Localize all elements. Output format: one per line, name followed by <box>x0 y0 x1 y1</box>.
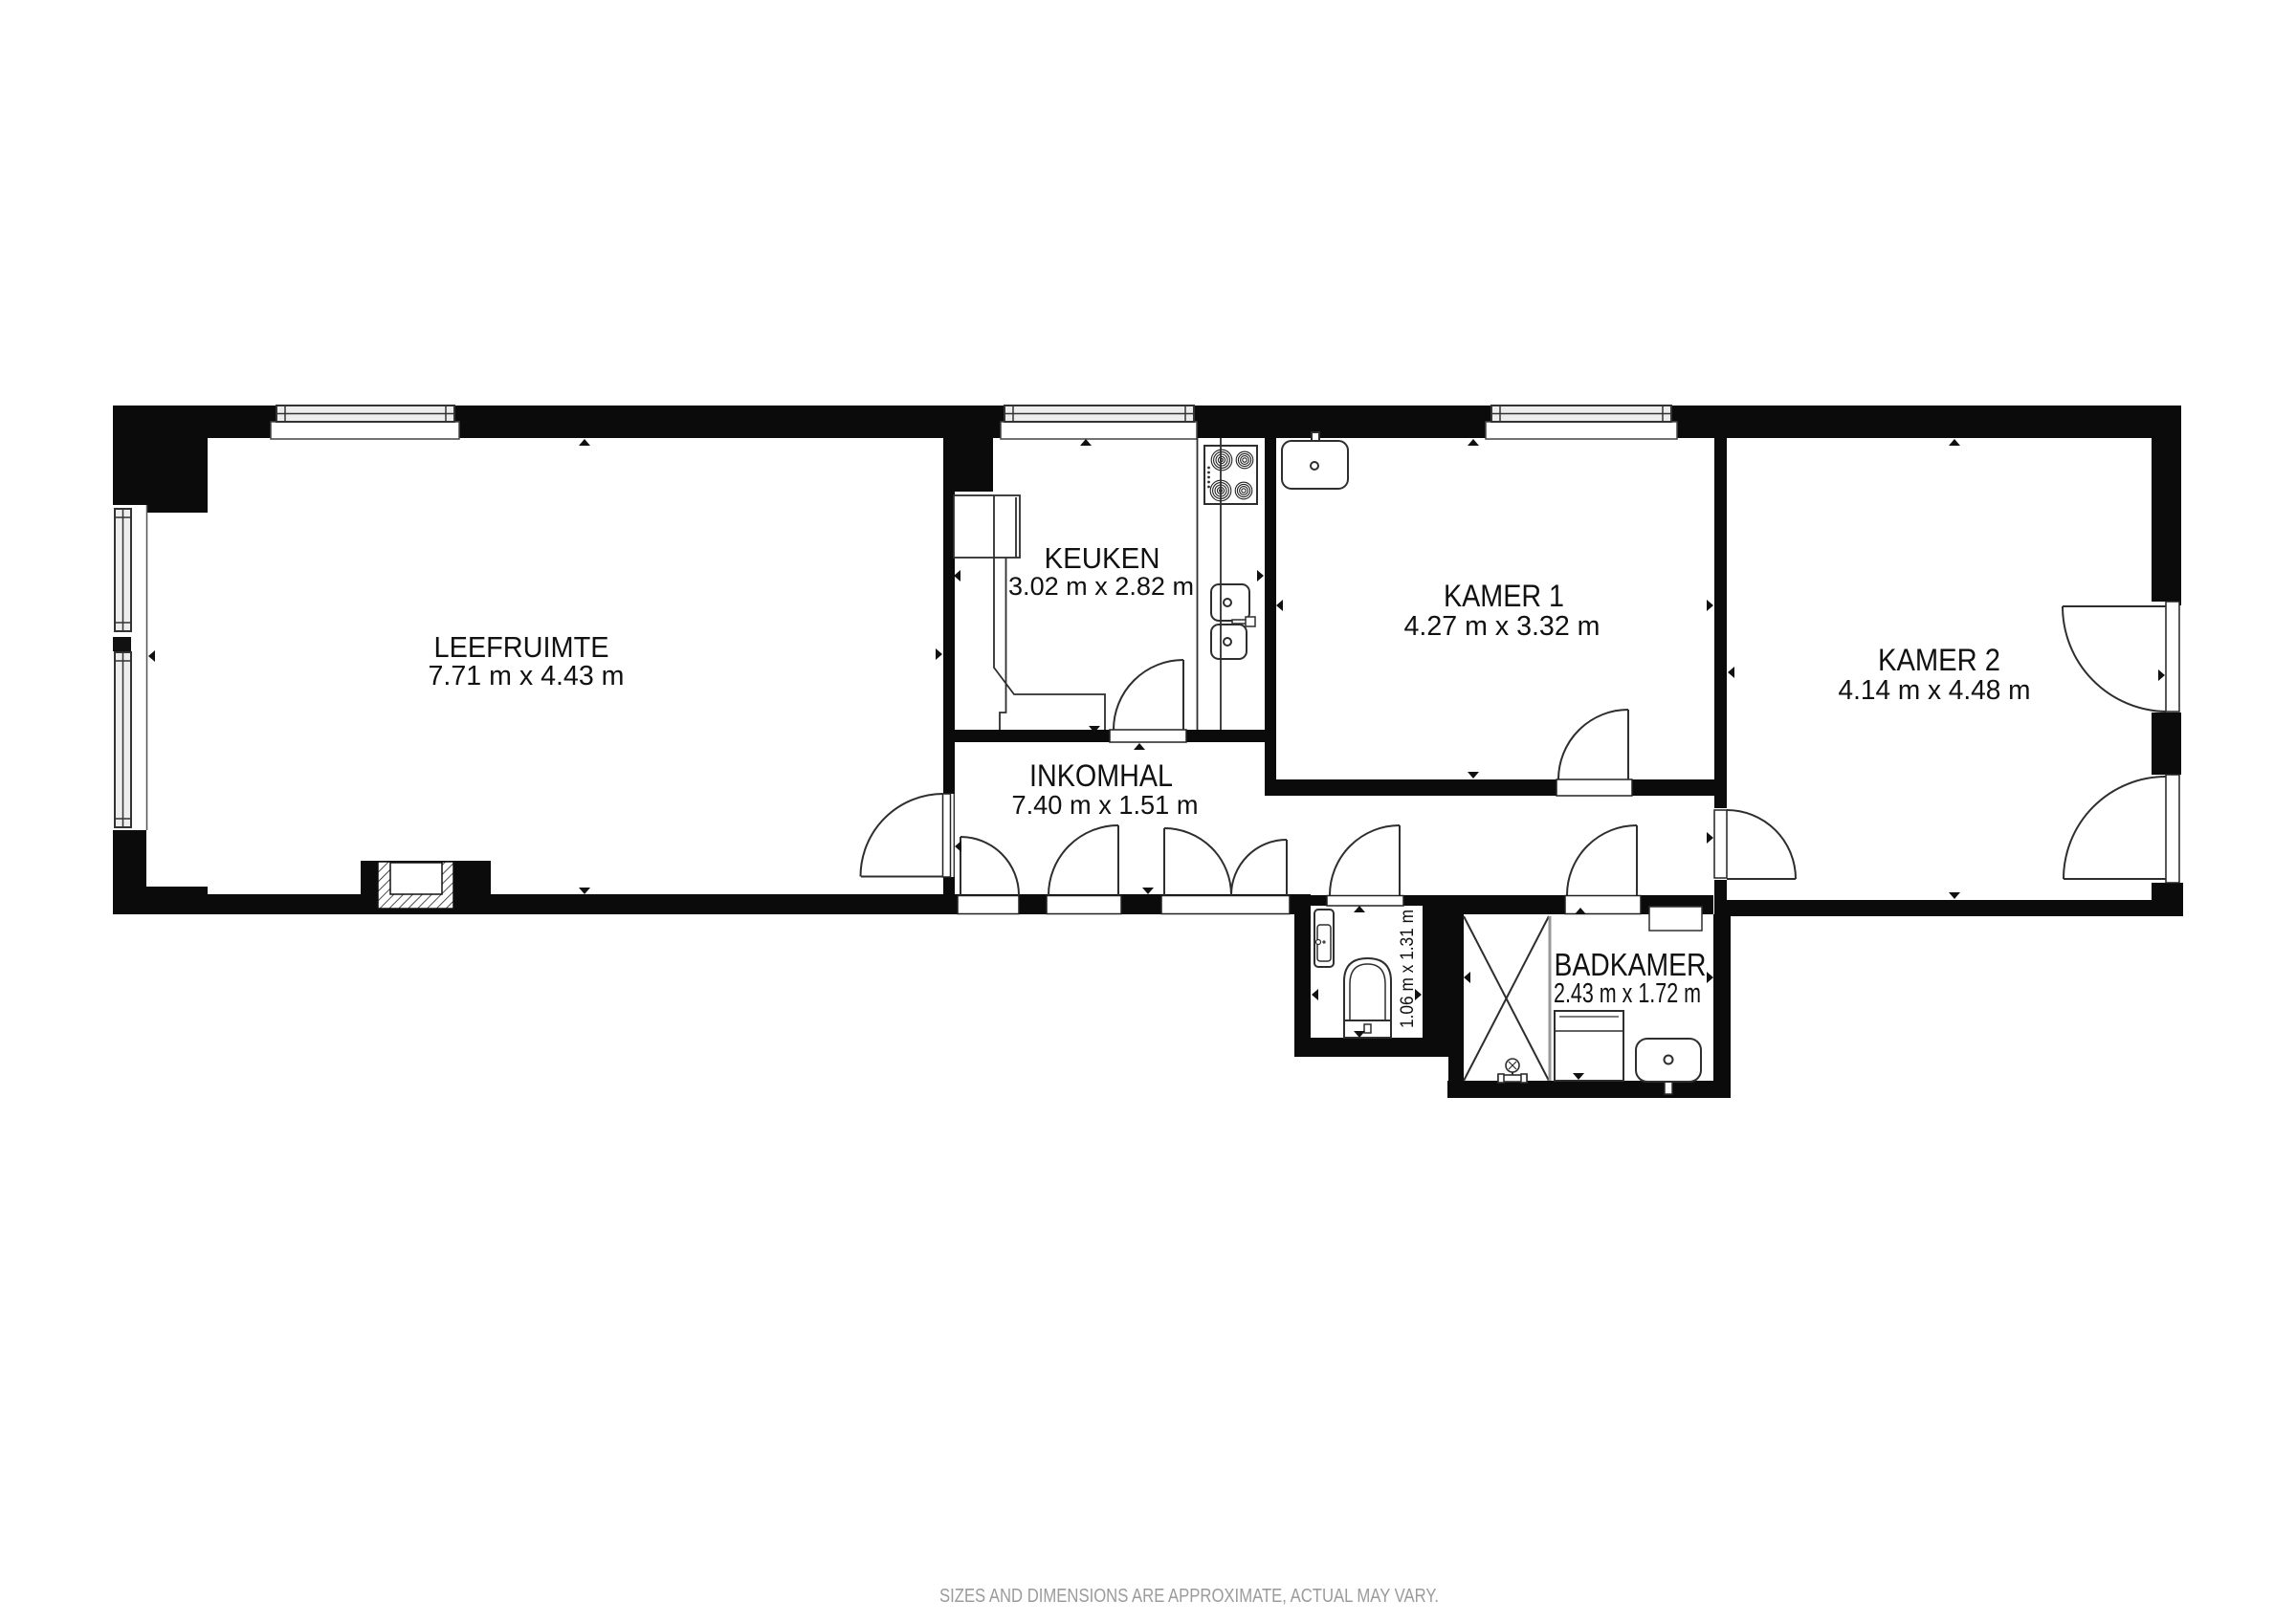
svg-text:KAMER 2: KAMER 2 <box>1878 643 2000 677</box>
svg-text:KAMER 1: KAMER 1 <box>1444 579 1564 613</box>
svg-text:4.27 m x 3.32 m: 4.27 m x 3.32 m <box>1404 611 1601 642</box>
svg-text:INKOMHAL: INKOMHAL <box>1029 758 1173 793</box>
svg-text:LEEFRUIMTE: LEEFRUIMTE <box>434 630 609 664</box>
svg-text:3.02 m x 2.82 m: 3.02 m x 2.82 m <box>1008 572 1194 601</box>
svg-text:BADKAMER: BADKAMER <box>1555 947 1707 982</box>
svg-text:1.06 m x 1.31 m: 1.06 m x 1.31 m <box>1398 910 1418 1028</box>
svg-text:2.43 m x 1.72 m: 2.43 m x 1.72 m <box>1554 978 1701 1009</box>
svg-text:7.40 m x 1.51 m: 7.40 m x 1.51 m <box>1012 790 1199 820</box>
svg-text:KEUKEN: KEUKEN <box>1045 541 1160 575</box>
svg-text:7.71 m x 4.43 m: 7.71 m x 4.43 m <box>429 661 625 691</box>
svg-text:4.14 m x 4.48 m: 4.14 m x 4.48 m <box>1839 675 2031 706</box>
svg-text:SIZES AND DIMENSIONS ARE APPRO: SIZES AND DIMENSIONS ARE APPROXIMATE, AC… <box>939 1586 1439 1607</box>
